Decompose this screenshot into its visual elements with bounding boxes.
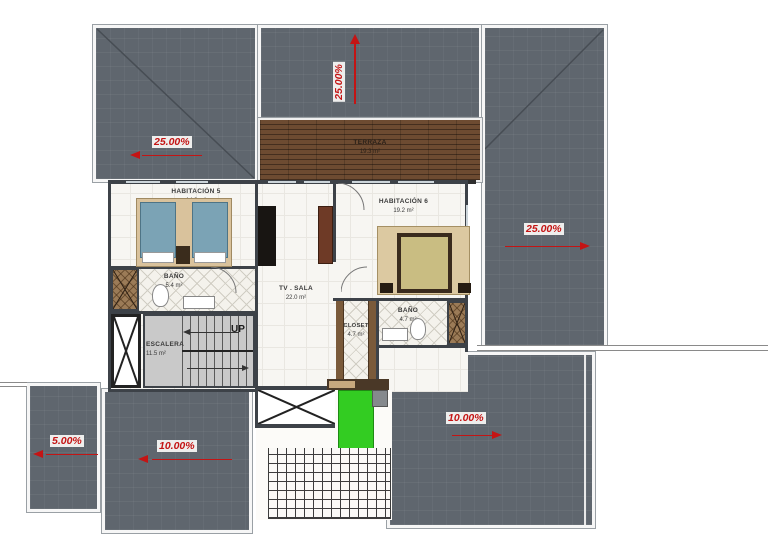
window <box>304 181 330 183</box>
roof-hip-line <box>96 28 255 179</box>
window <box>126 181 160 183</box>
slope-arrow-right-icon <box>492 431 502 439</box>
arrow-right-icon <box>242 365 249 371</box>
room-label-closet: CLOSET 4.7 m² <box>336 322 376 340</box>
slope-arrow-left-icon <box>130 151 140 159</box>
slope-arrow-right-icon <box>580 242 590 250</box>
room-name: HABITACIÓN 5 <box>150 187 242 197</box>
slope-arrow-left-icon <box>138 455 148 463</box>
shower-x-lines <box>113 270 137 309</box>
room-name: TV . SALA <box>262 284 330 294</box>
roof-bottom-left-small <box>27 383 100 512</box>
door-arc <box>210 267 237 294</box>
toilet <box>410 318 426 340</box>
bed <box>192 202 228 258</box>
room-name: HABITACIÓN 6 <box>356 197 451 207</box>
window <box>176 181 208 183</box>
slope-label-top: 25.00% <box>331 56 347 108</box>
wall <box>333 180 336 262</box>
window <box>398 181 434 183</box>
shower-x-lines <box>449 303 465 343</box>
roof-right <box>482 25 607 348</box>
slope-arrow-up-icon <box>350 34 360 44</box>
roof-edge-line <box>584 355 586 525</box>
slope-label-bottom-right: 10.00% <box>446 412 486 424</box>
room-area: 22.0 m² <box>262 294 330 303</box>
room-label-escalera: ESCALERA 11.5 m² <box>146 340 186 359</box>
slope-label-bottom-left: 5.00% <box>50 435 84 447</box>
planter-box <box>327 379 389 390</box>
room-name: ESCALERA <box>146 340 186 350</box>
floor-plan-canvas: TERRAZA 19.3 m² HABITACIÓN 5 14.3 m² <box>0 0 768 558</box>
nightstand <box>380 283 393 293</box>
slope-value: 25.00% <box>333 62 345 102</box>
post <box>372 390 388 407</box>
slope-arrow-shaft <box>152 459 232 460</box>
void-x-lines <box>258 390 335 424</box>
shaft <box>111 314 141 388</box>
shower <box>111 268 139 311</box>
slope-arrow-shaft <box>354 44 356 104</box>
wall <box>376 345 468 348</box>
slope-label-right: 25.00% <box>524 223 564 235</box>
bed <box>140 202 176 258</box>
shower <box>447 301 467 345</box>
room-label-habitacion-6: HABITACIÓN 6 19.2 m² <box>356 197 451 216</box>
stairs-up-label: UP <box>231 324 245 335</box>
staircase: UP ESCALERA 11.5 m² <box>143 314 255 388</box>
bed <box>401 237 448 289</box>
eave-line-right <box>477 345 768 351</box>
room-label-tv-sala: TV . SALA 22.0 m² <box>262 284 330 303</box>
roof-top-left <box>93 25 258 182</box>
room-name: CLOSET <box>336 322 376 331</box>
eave-line-left <box>0 382 27 387</box>
stair-direction-line <box>187 368 243 369</box>
window <box>268 181 296 183</box>
stair-divider <box>182 350 253 352</box>
bed-pillow <box>142 252 174 263</box>
nightstand <box>458 283 471 293</box>
room-area: 11.5 m² <box>146 350 186 359</box>
slope-label-left: 25.00% <box>152 136 192 148</box>
wardrobe <box>336 301 344 387</box>
tv-panel <box>258 206 276 266</box>
shaft-x-lines <box>114 317 138 385</box>
wall <box>108 389 258 392</box>
door-arc <box>341 266 368 293</box>
roof-hip-line <box>485 28 604 345</box>
room-area: 4.7 m² <box>336 331 376 340</box>
room-area: 19.3 m² <box>310 148 430 157</box>
slope-arrow-left-icon <box>33 450 43 458</box>
sink-vanity <box>183 296 215 309</box>
arrow-left-icon <box>183 329 190 335</box>
slope-arrow-shaft <box>46 454 98 455</box>
toilet <box>152 284 169 307</box>
room-label-terraza: TERRAZA 19.3 m² <box>310 138 430 157</box>
room-name: BAÑO <box>385 306 431 316</box>
slope-arrow-shaft <box>142 155 202 156</box>
patio-grid <box>268 448 391 519</box>
room-name: TERRAZA <box>310 138 430 148</box>
nightstand <box>176 246 190 264</box>
sink-vanity <box>382 328 408 341</box>
bed-pillow <box>194 252 226 263</box>
atrium-void <box>258 390 335 424</box>
slope-arrow-shaft <box>505 246 583 247</box>
room-name: BAÑO <box>152 272 196 282</box>
planter-inner <box>329 381 355 388</box>
wall <box>255 424 335 428</box>
roof-top-middle <box>258 25 482 120</box>
roof-bottom-left-large <box>102 389 252 533</box>
wardrobe <box>368 301 376 387</box>
room-area: 19.2 m² <box>356 207 451 216</box>
console-cabinet <box>318 206 333 264</box>
slope-label-bottom-middle: 10.00% <box>157 440 197 452</box>
slope-arrow-shaft <box>452 435 494 436</box>
